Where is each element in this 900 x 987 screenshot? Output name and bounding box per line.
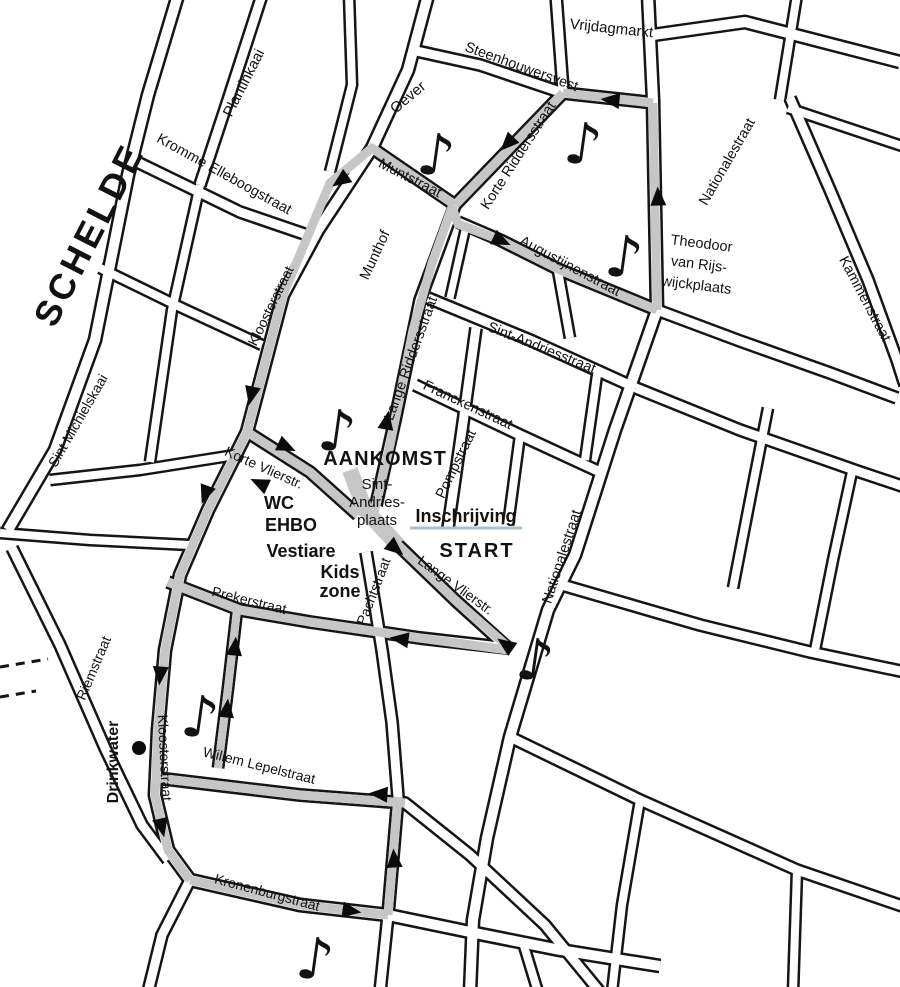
label-start: START <box>439 540 514 562</box>
street-onderrechts-d <box>793 870 797 987</box>
label-kids-zone: Kidszone <box>319 562 360 601</box>
map-canvas: ♪♪♪♪♪♪♪SCHELDEPlantinkaaiKromme Elleboog… <box>0 0 900 987</box>
label-wc: WC <box>264 493 294 513</box>
label-ehbo: EHBO <box>265 515 317 535</box>
map-root: ♪♪♪♪♪♪♪SCHELDEPlantinkaaiKromme Elleboog… <box>0 0 900 987</box>
label-vestiare: Vestiare <box>266 541 335 561</box>
label-aankomst: AANKOMST <box>323 448 447 470</box>
label-theodoor-van-rijswijckplaats: Theodoorvan Rijs-wijckplaats <box>660 232 738 298</box>
label-drinkwater: Drinkwater <box>105 721 122 804</box>
label-inschrijving: Inschrijving <box>415 506 516 526</box>
drinkwater-dot-icon <box>132 741 146 755</box>
route-segment-nationalestraat <box>653 103 657 310</box>
